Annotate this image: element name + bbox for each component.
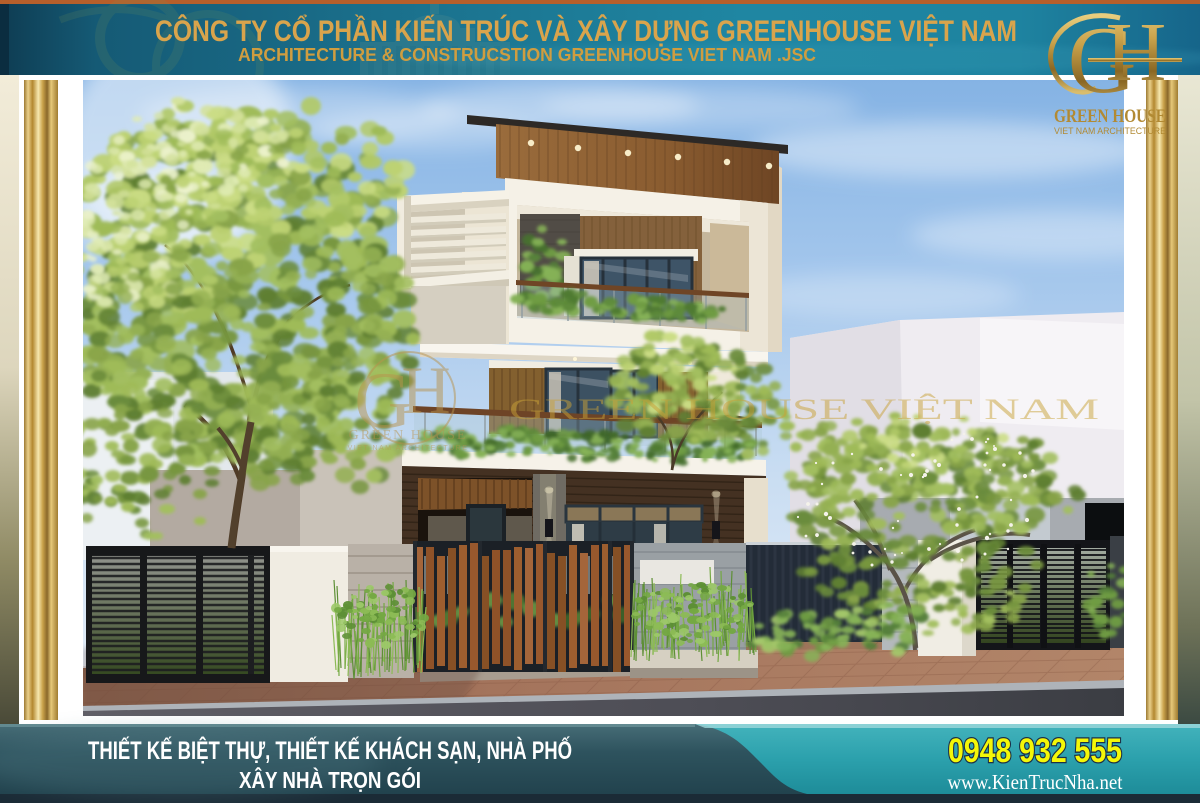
svg-text:www.KienTrucNha.net: www.KienTrucNha.net (948, 770, 1123, 794)
svg-text:GREEN HOUSE: GREEN HOUSE (349, 428, 468, 443)
svg-text:ARCHITECTURE & CONSTRUCSTION G: ARCHITECTURE & CONSTRUCSTION GREENHOUSE … (238, 44, 816, 65)
svg-text:CÔNG TY CỔ PHẦN KIẾN TRÚC VÀ X: CÔNG TY CỔ PHẦN KIẾN TRÚC VÀ XÂY DỰNG GR… (155, 14, 1017, 48)
svg-text:VIET NAM ARCHITECTURE: VIET NAM ARCHITECTURE (1054, 126, 1166, 136)
svg-text:VIET NAM ARCHITECTURE: VIET NAM ARCHITECTURE (348, 445, 469, 452)
svg-text:THIẾT KẾ BIỆT THỰ, THIẾT KẾ KH: THIẾT KẾ BIỆT THỰ, THIẾT KẾ KHÁCH SẠN, N… (88, 735, 572, 765)
svg-text:H: H (1106, 6, 1167, 99)
svg-text:H: H (401, 352, 450, 428)
svg-text:GREEN HOUSE VIỆT NAM: GREEN HOUSE VIỆT NAM (509, 393, 1099, 426)
svg-text:0948 932 555: 0948 932 555 (948, 732, 1122, 770)
svg-text:XÂY NHÀ TRỌN GÓI: XÂY NHÀ TRỌN GÓI (239, 766, 421, 793)
svg-text:GREEN HOUSE: GREEN HOUSE (1054, 107, 1166, 127)
